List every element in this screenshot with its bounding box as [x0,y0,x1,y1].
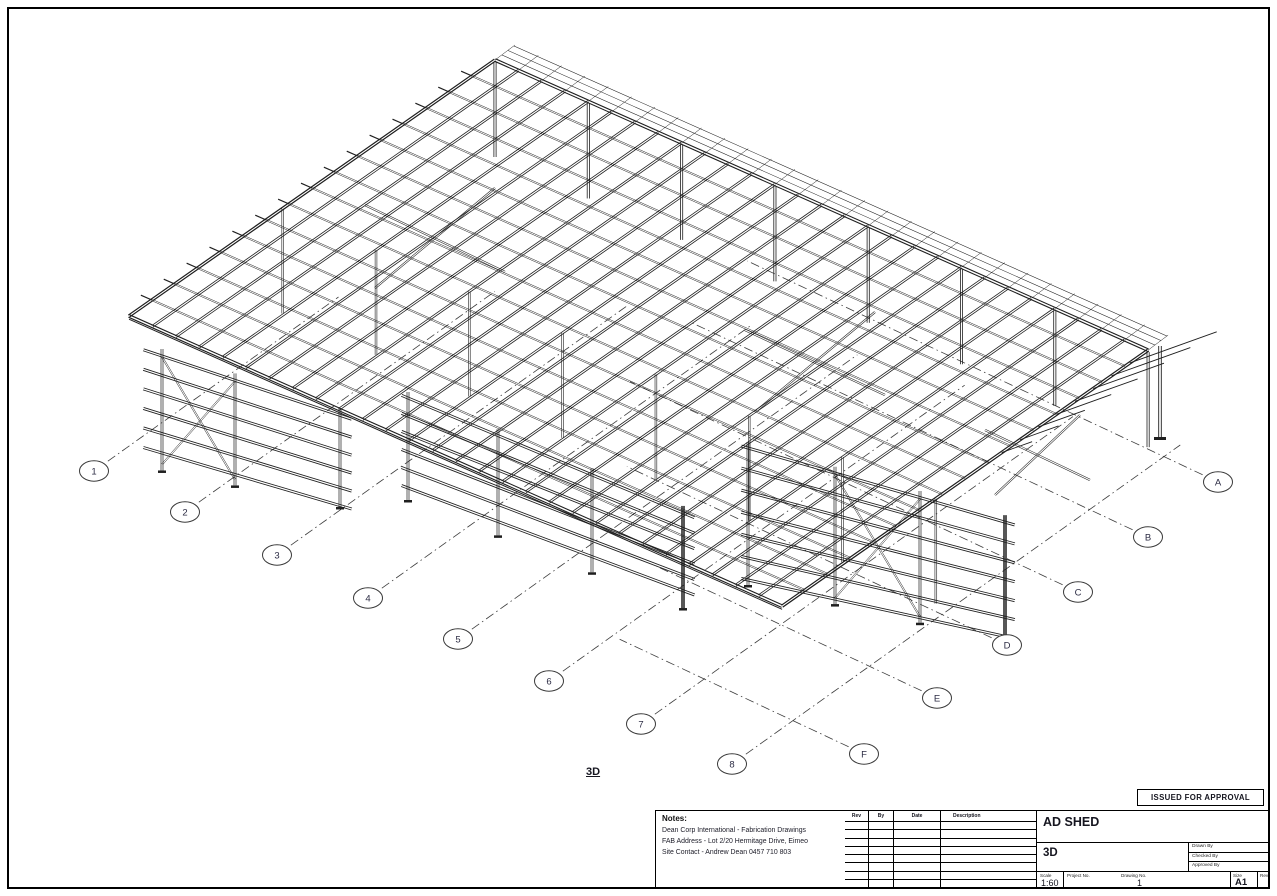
grid-bubble-B-label: B [1145,532,1151,543]
rev-empty-cell [845,855,869,863]
rev-empty-cell [845,847,869,855]
grid-bubble-E-label: E [934,693,940,704]
checked-by-label: Checked By [1189,853,1269,863]
notes-line: Dean Corp International - Fabrication Dr… [662,825,845,836]
columns [282,62,1166,604]
project-no-label: Project No. [1067,873,1090,878]
rev-empty-cell [941,880,1037,888]
cell-divider [1063,872,1064,889]
approval-stamp: ISSUED FOR APPROVAL [1137,789,1264,806]
rev-empty-cell [894,863,941,871]
cell-divider [1230,872,1231,889]
size-value: A1 [1235,877,1247,888]
signoff-block: Drawn By Checked By Approved By [1188,843,1269,872]
rev-col-header: Rev [845,811,869,822]
notes-line: FAB Address - Lot 2/20 Hermitage Drive, … [662,836,845,847]
view-name: 3D [1043,847,1058,859]
rev-empty-cell [894,872,941,880]
rev-empty-cell [869,855,894,863]
rev-empty-cell [894,839,941,847]
grid-bubble-3-label: 3 [274,550,279,561]
grid-bubbles: 12345678ABCDEF [80,461,1233,774]
shed-3d-wireframe-view: 12345678ABCDEF [0,0,1277,896]
rev-col-header: By [869,811,894,822]
rev-empty-cell [941,839,1037,847]
rev-empty-cell [894,855,941,863]
rev-empty-cell [941,863,1037,871]
grid-bubble-8-label: 8 [729,759,734,770]
notes-line: Site Contact - Andrew Dean 0457 710 803 [662,847,845,858]
grid-bubble-7-label: 7 [638,719,643,730]
rev-empty-cell [941,830,1037,838]
revision-table: RevByDateDescription [845,811,1037,888]
rev-empty-cell [894,822,941,830]
project-title: AD SHED [1043,815,1099,829]
rev-empty-cell [869,847,894,855]
rev-empty-cell [869,830,894,838]
grid-bubble-5-label: 5 [455,634,460,645]
rev-empty-cell [894,880,941,888]
scale-value: 1:60 [1041,878,1059,888]
notes-heading: Notes: [662,814,845,823]
rev-empty-cell [845,880,869,888]
rev-empty-cell [845,830,869,838]
rev-empty-cell [869,872,894,880]
grid-bubble-A-label: A [1215,477,1222,488]
rev-empty-cell [845,839,869,847]
rev-col-header: Date [894,811,941,822]
drawing-no-label: Drawing No. [1121,873,1146,878]
drawing-sheet: 12345678ABCDEF 3D ISSUED FOR APPROVAL No… [0,0,1277,896]
grid-bubble-C-label: C [1075,587,1082,598]
rev-empty-cell [869,863,894,871]
title-block: Notes: Dean Corp International - Fabrica… [655,810,1268,887]
rev-empty-cell [941,847,1037,855]
rev-empty-cell [869,822,894,830]
rev-empty-cell [845,872,869,880]
view-title-label: 3D [586,766,600,778]
drawing-no-value: 1 [1137,878,1142,888]
grid-bubble-1-label: 1 [91,466,96,477]
rev-empty-cell [941,855,1037,863]
cell-divider [1257,872,1258,889]
rev-label: Rev [1260,873,1268,878]
drawn-by-label: Drawn By [1189,843,1269,853]
grid-bubble-4-label: 4 [365,593,370,604]
wall-girts [143,349,1015,644]
rev-col-header: Description [941,811,1037,822]
grid-bubble-6-label: 6 [546,676,551,687]
rev-empty-cell [869,839,894,847]
grid-bubble-F-label: F [861,749,867,760]
view-name-row: 3D Drawn By Checked By Approved By [1037,842,1269,871]
rev-empty-cell [894,830,941,838]
notes-block: Notes: Dean Corp International - Fabrica… [656,811,845,888]
rev-empty-cell [845,863,869,871]
rev-empty-cell [845,822,869,830]
rev-empty-cell [941,822,1037,830]
rev-empty-cell [894,847,941,855]
title-block-right: AD SHED 3D Drawn By Checked By Approved … [1037,811,1269,888]
rev-empty-cell [941,872,1037,880]
ground-grid-lines [108,261,1203,754]
grid-bubble-D-label: D [1004,640,1011,651]
rev-empty-cell [869,880,894,888]
grid-bubble-2-label: 2 [182,507,187,518]
scale-row: Scale 1:60 Project No. Drawing No. 1 Siz… [1037,871,1269,888]
